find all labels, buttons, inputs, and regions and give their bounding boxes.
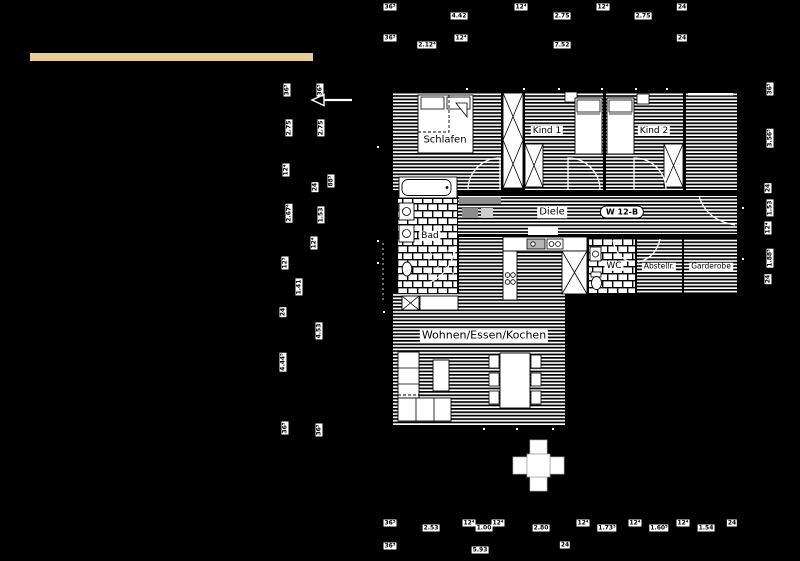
- bathtub: [399, 177, 457, 198]
- dimension-label: 24: [765, 183, 772, 193]
- dimension-label: 2.75: [635, 13, 652, 20]
- dimension-label: 2.67⁴: [286, 203, 293, 222]
- dimension-label: 2.80: [533, 525, 550, 532]
- dimension-label: 2.53: [423, 525, 440, 532]
- coffee-table: [433, 360, 449, 391]
- room-label-diele: Diele: [537, 206, 567, 218]
- wardrobe-schlafen: [503, 93, 523, 188]
- dimension-label: 36⁵: [767, 83, 774, 96]
- dining-table-chairs: [489, 353, 541, 408]
- dimension-label: 88⁵: [328, 175, 335, 188]
- dimension-label: 12⁴: [765, 222, 772, 235]
- dimension-label: 24: [677, 35, 687, 42]
- pantry-cupboard: [562, 251, 587, 294]
- dimension-label: 36⁵: [282, 422, 289, 435]
- dimension-label: 12⁴: [463, 520, 476, 527]
- dimension-label: 2.75: [286, 120, 293, 137]
- dimension-label: 1.53: [767, 200, 774, 217]
- dimension-label: 12⁴: [455, 35, 468, 42]
- dimension-label: 36⁵: [316, 424, 323, 437]
- floor-plan-page: 36⁵4.4212⁴2.7512⁴2.752436⁵2.12⁴12⁴7.5224…: [0, 0, 800, 561]
- dimension-label: 4.53: [316, 323, 323, 340]
- dimension-label: 1.60⁵: [649, 525, 668, 532]
- sideboard: [402, 296, 458, 310]
- dimension-label: 1.41: [296, 279, 303, 296]
- floor-plan-drawing: [300, 85, 745, 500]
- terrace-table-chairs: [513, 440, 564, 491]
- dimension-label: 2.75: [554, 13, 571, 20]
- room-label-wc: WC: [604, 261, 623, 271]
- dimension-label: 24: [560, 542, 570, 549]
- room-label-garderobe: Garderobe: [689, 263, 733, 272]
- dimension-label: 3.56⁵: [767, 128, 774, 147]
- dimension-label: 12⁴: [597, 4, 610, 11]
- room-label-kind-2: Kind 2: [638, 126, 670, 136]
- dimension-label: 1.73⁵: [597, 525, 616, 532]
- bad-toilet: [402, 262, 412, 276]
- dimension-label: 12⁴: [311, 237, 318, 250]
- dimension-label: 36⁵: [384, 4, 397, 11]
- room-label-kind-1: Kind 1: [531, 126, 563, 136]
- unit-badge: W 12-B: [600, 206, 644, 219]
- room-label-schlafen: Schlafen: [421, 134, 468, 146]
- dimension-label: 1.00: [476, 525, 493, 532]
- hall-sideboard: [528, 227, 558, 235]
- dimension-label: 36⁵: [384, 35, 397, 42]
- dimension-label: 24: [727, 520, 737, 527]
- dimension-label: 12⁴: [492, 520, 505, 527]
- dimension-label: 12⁴: [577, 520, 590, 527]
- accent-bar: [30, 53, 313, 61]
- dimension-label: 12⁴: [677, 520, 690, 527]
- dimension-label: 12⁴: [515, 4, 528, 11]
- dimension-label: 12⁴: [629, 520, 642, 527]
- dimension-label: 1.54: [698, 525, 715, 532]
- dimension-label: 36⁵: [284, 84, 291, 97]
- dimension-label: 4.44⁵: [280, 352, 287, 371]
- dimension-label: 36⁵: [384, 543, 397, 550]
- room-label-bad: Bad: [419, 231, 440, 241]
- room-label-abstellraum: Abstellr.: [642, 263, 676, 272]
- wardrobe-kind-1: [525, 144, 543, 187]
- wardrobe-kind-2: [664, 144, 683, 187]
- dimension-label: 4.42: [451, 13, 468, 20]
- dimension-label: 24: [312, 182, 319, 192]
- dimension-label: 2.75: [318, 120, 325, 137]
- dimension-label: 24: [280, 307, 287, 317]
- dimension-label: 24: [677, 4, 687, 11]
- room-label-wohnen-essen-kochen: Wohnen/Essen/Kochen: [420, 330, 548, 343]
- dimension-label: 2.12⁴: [417, 42, 436, 49]
- dimension-label: 1.88⁵: [767, 248, 774, 267]
- dimension-label: 12⁵: [282, 257, 289, 270]
- dimension-label: 5.93: [472, 547, 489, 554]
- dimension-label: 12⁴: [283, 164, 290, 177]
- dimension-label: 1.53: [318, 207, 325, 224]
- dimension-label: 36⁵: [317, 84, 324, 97]
- dimension-label: 36⁵: [384, 520, 397, 527]
- dimension-label: 7.52: [554, 42, 571, 49]
- dimension-label: 24: [765, 274, 772, 284]
